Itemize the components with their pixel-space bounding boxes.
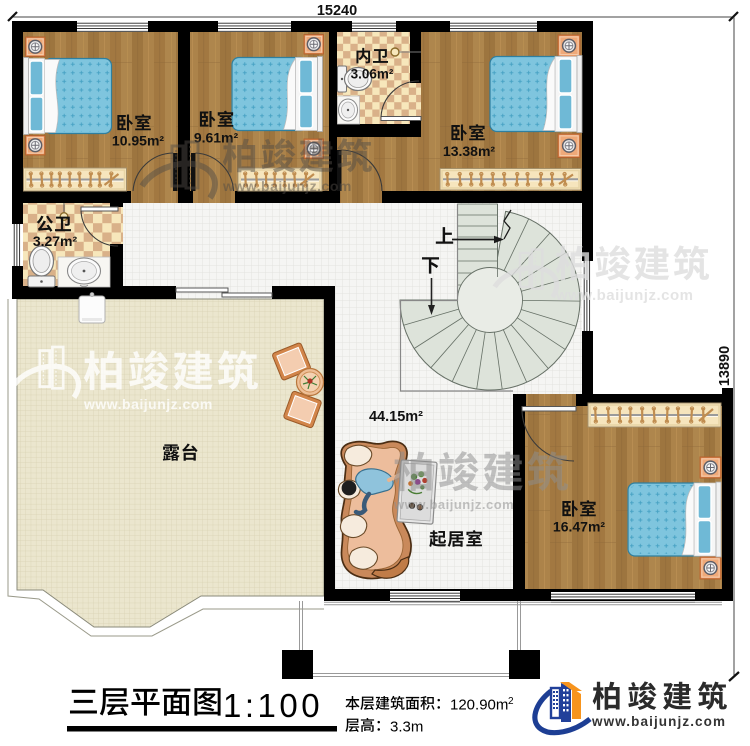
svg-text:www.baijunjz.com: www.baijunjz.com <box>222 178 352 194</box>
svg-text:www.baijunjz.com: www.baijunjz.com <box>83 396 213 412</box>
svg-text:15240: 15240 <box>317 3 357 19</box>
svg-text:13890: 13890 <box>717 346 733 386</box>
svg-text:1:100: 1:100 <box>223 687 323 724</box>
svg-text:44.15m²: 44.15m² <box>369 409 423 425</box>
svg-text:16.47m²: 16.47m² <box>553 519 605 535</box>
svg-text:120.90m: 120.90m <box>450 697 508 714</box>
svg-text:9.61m²: 9.61m² <box>194 130 239 146</box>
svg-text:www.baijunjz.com: www.baijunjz.com <box>555 287 693 304</box>
svg-text:3.27m²: 3.27m² <box>33 233 78 249</box>
svg-text:www.baijunjz.com: www.baijunjz.com <box>591 714 726 729</box>
svg-text:3.3m: 3.3m <box>390 719 423 736</box>
svg-text:13.38m²: 13.38m² <box>443 143 495 159</box>
svg-text:3.06m²: 3.06m² <box>351 67 394 82</box>
svg-text:10.95m²: 10.95m² <box>112 133 164 149</box>
svg-text:www.baijunjz.com: www.baijunjz.com <box>393 497 514 512</box>
svg-text:2: 2 <box>508 696 514 707</box>
